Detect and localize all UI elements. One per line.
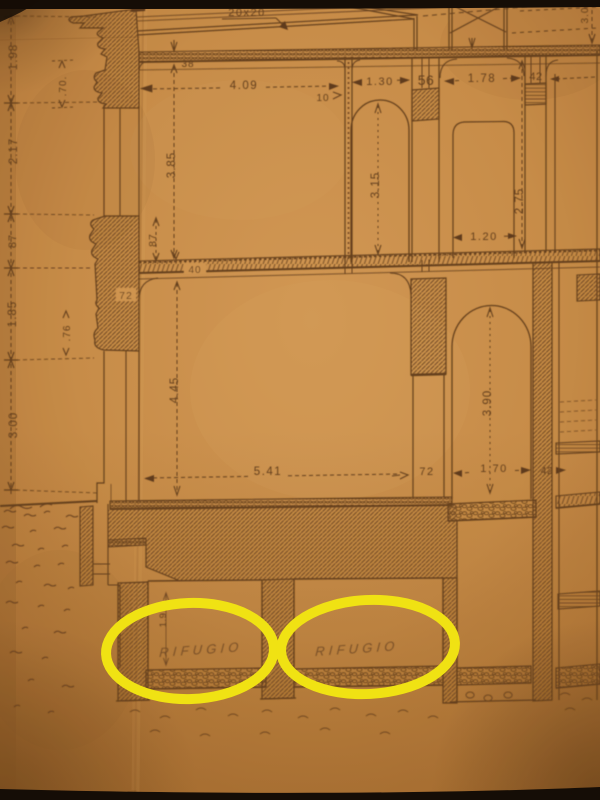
svg-text:3.15: 3.15 (370, 172, 382, 198)
svg-text:1.20: 1.20 (470, 231, 497, 243)
svg-text:1.98: 1.98 (8, 44, 20, 70)
svg-text:72: 72 (419, 466, 434, 478)
svg-text:4.09: 4.09 (230, 80, 258, 92)
svg-text:3.00: 3.00 (8, 412, 20, 438)
svg-text:.76: .76 (62, 325, 73, 342)
svg-text:1.70: 1.70 (480, 463, 507, 475)
svg-text:42: 42 (529, 71, 542, 83)
svg-text:3.0: 3.0 (580, 7, 591, 24)
svg-text:.70.: .70. (58, 76, 69, 97)
svg-text:1.9: 1.9 (158, 613, 169, 628)
svg-text:4.45: 4.45 (169, 377, 181, 403)
svg-text:10: 10 (316, 93, 329, 104)
svg-text:1.78: 1.78 (468, 73, 496, 85)
svg-text:87: 87 (147, 233, 159, 247)
svg-text:87: 87 (7, 234, 19, 248)
svg-text:56: 56 (418, 72, 435, 88)
svg-text:1.85: 1.85 (7, 301, 19, 327)
svg-text:38: 38 (181, 59, 194, 70)
svg-text:1.30: 1.30 (366, 76, 393, 88)
svg-text:40: 40 (188, 265, 201, 276)
svg-text:3.85: 3.85 (166, 152, 178, 178)
svg-text:3.90: 3.90 (482, 390, 494, 416)
svg-text:2.75: 2.75 (514, 188, 526, 214)
svg-text:72: 72 (119, 290, 133, 302)
svg-text:2.17: 2.17 (8, 138, 20, 164)
svg-text:5.41: 5.41 (254, 466, 282, 478)
